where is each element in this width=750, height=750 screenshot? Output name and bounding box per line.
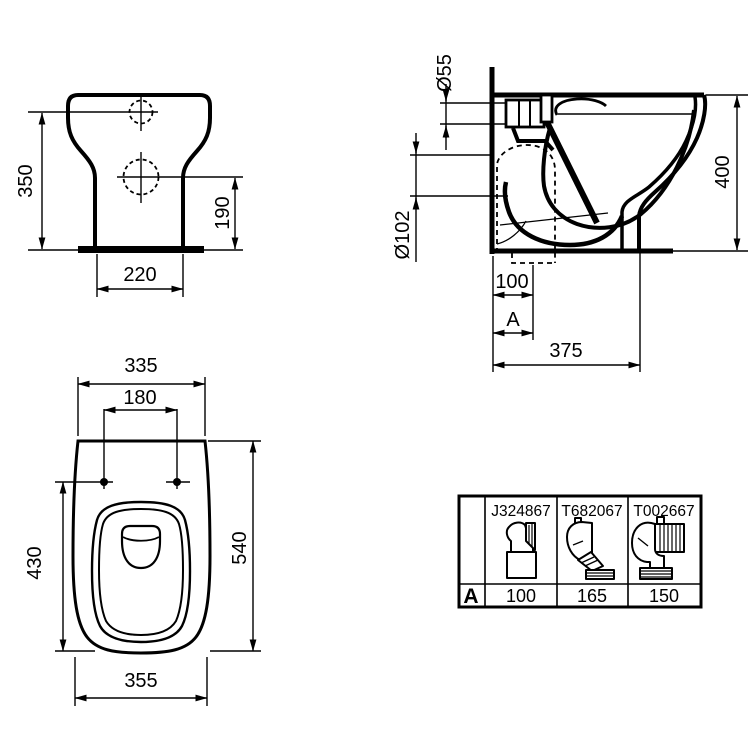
dim-350: 350 [15,113,42,249]
dim-d102-label: Ø102 [392,211,414,260]
dim-d55: Ø55 [434,54,456,150]
dim-540: 540 [229,441,253,651]
technical-drawing: 350 190 220 [0,0,750,750]
bowl-rim-inner [99,509,183,635]
dim-d102: Ø102 [392,133,416,262]
adapter-icon-3 [632,517,684,579]
dim-350-label: 350 [15,164,37,197]
dim-335-label: 335 [124,355,157,377]
dim-355-label: 355 [124,670,157,692]
base-plinth [78,246,204,253]
adapter-table: A J324867 T682067 T002667 100 165 150 [459,496,701,608]
dim-375: 375 [493,340,640,365]
adapter-value-3: 150 [649,586,679,606]
dim-100-label: 100 [495,271,528,293]
dim-d55-label: Ø55 [434,54,456,92]
dim-220-label: 220 [123,264,156,286]
dim-190: 190 [212,178,235,249]
side-view: Ø55 Ø102 400 100 A 375 [392,54,748,372]
water-area [122,526,160,568]
flush-swirl [556,99,606,115]
adapter-icon-1 [507,523,536,578]
dim-a: A [493,309,533,333]
d55-extensions [440,103,506,124]
toilet-front-outline [68,95,210,247]
dim-430-label: 430 [24,546,46,579]
adapter-code-2: T682067 [561,503,622,520]
table-row-label: A [463,585,478,608]
dim-400-label: 400 [712,155,734,188]
dim-190-label: 190 [212,196,234,229]
adapter-value-1: 100 [506,586,536,606]
dim-540-label: 540 [229,531,251,564]
dim-100: 100 [493,271,533,295]
bowl-interior [543,110,694,228]
dim-400: 400 [712,96,737,250]
water-area-divider [123,537,159,541]
drawing-svg: 350 190 220 [0,0,750,750]
dim-a-label: A [506,309,520,331]
inlet-spigot [506,95,552,127]
dim-355: 355 [75,670,207,698]
adapter-code-1: J324867 [491,503,550,520]
dim-180-label: 180 [123,387,156,409]
dim-375-label: 375 [549,340,582,362]
front-profile-inner [622,97,696,249]
dim-335: 335 [78,355,205,384]
dim-180: 180 [104,387,177,410]
dim-430: 430 [24,482,63,651]
adapter-icon-2 [567,518,614,579]
adapter-value-2: 165 [577,586,607,606]
front-view: 350 190 220 [15,94,243,297]
top-view: 335 180 430 540 355 [24,355,261,706]
dim-220: 220 [97,254,183,297]
